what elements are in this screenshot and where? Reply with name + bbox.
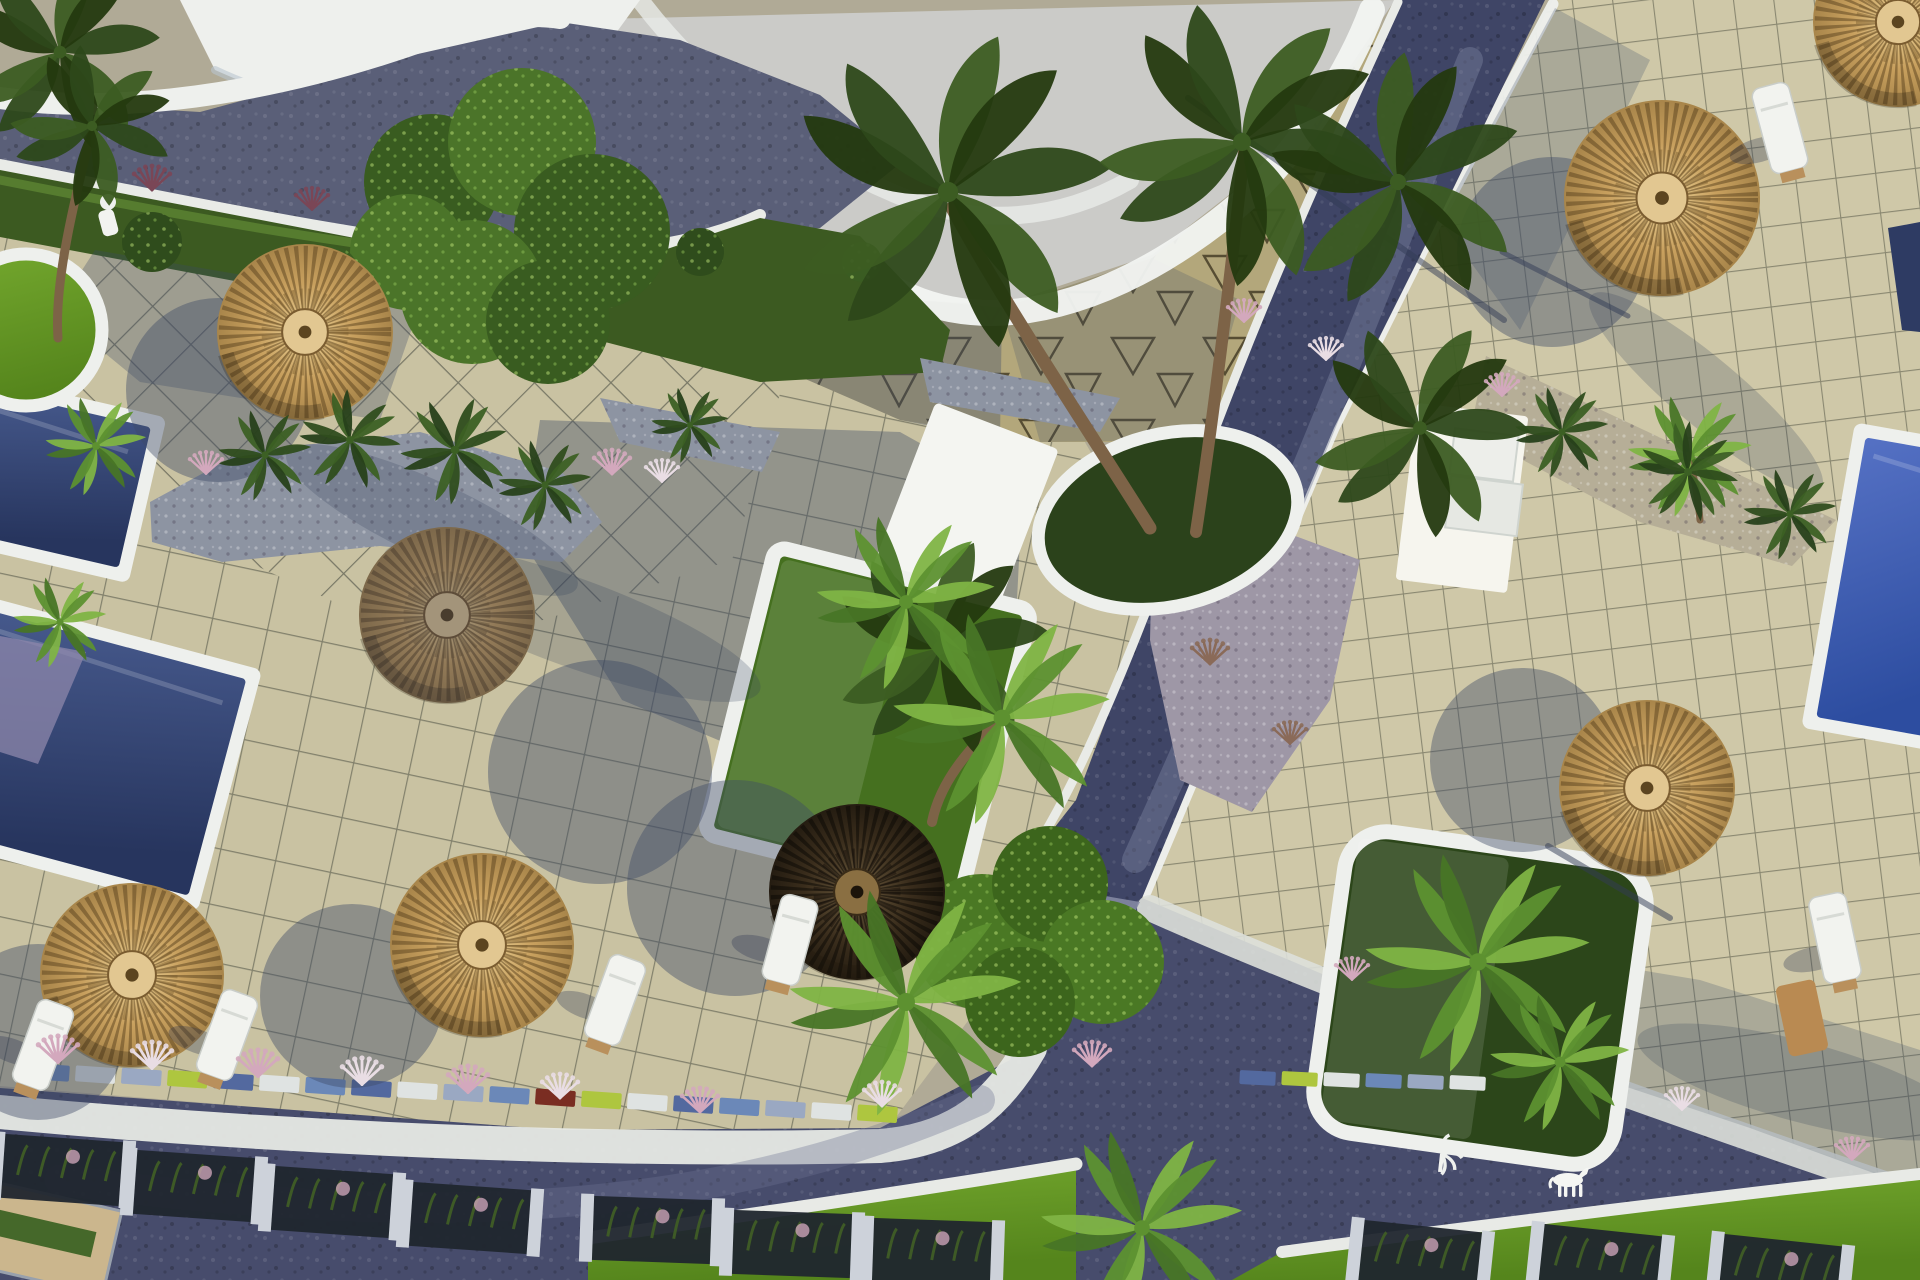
- planter-box: [719, 1208, 865, 1280]
- planter-box: [579, 1194, 725, 1267]
- planter-box: [0, 1131, 136, 1209]
- straw-parasol: [1559, 700, 1735, 876]
- straw-parasol-shaded: [359, 527, 535, 703]
- screenshot-aerial-resort-render: [0, 0, 1920, 1280]
- resort-aerial-render: [0, 0, 1920, 1280]
- round-lawn-planter: [0, 254, 102, 406]
- planter-box: [396, 1179, 544, 1257]
- planter-box: [859, 1216, 1005, 1280]
- straw-parasol: [390, 853, 574, 1037]
- straw-parasol: [217, 244, 393, 420]
- planter-box: [120, 1147, 268, 1225]
- straw-parasol: [1564, 100, 1760, 296]
- planter-box: [258, 1163, 406, 1241]
